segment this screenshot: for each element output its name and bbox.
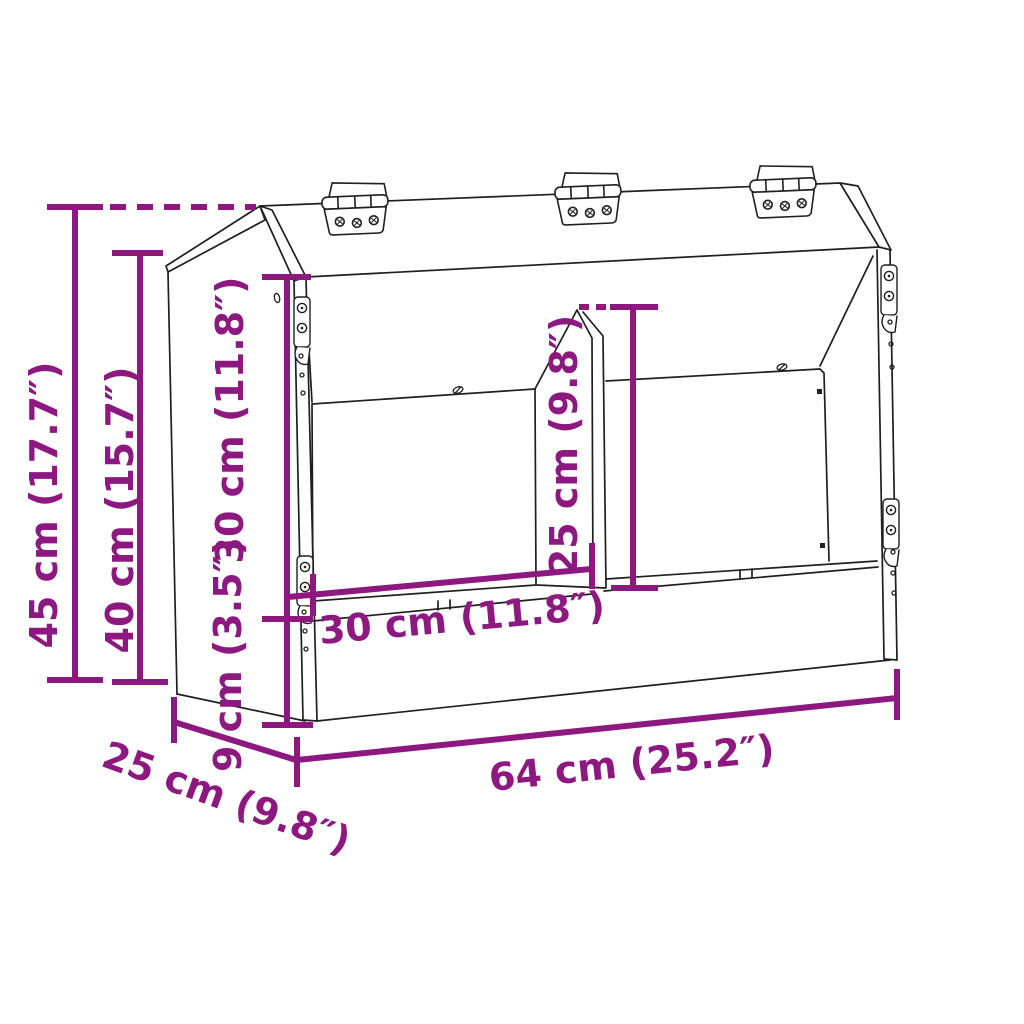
label-front-height: 40 cm (15.7″) bbox=[98, 367, 142, 654]
hinge-icon bbox=[321, 181, 389, 236]
panel-screw-icon bbox=[817, 389, 822, 394]
hinge-icon bbox=[554, 171, 622, 226]
background bbox=[0, 0, 1024, 1024]
panel-screw-icon bbox=[820, 543, 825, 548]
diagram-canvas: 45 cm (17.7″) 40 cm (15.7″) 30 cm (11.8″… bbox=[0, 0, 1024, 1024]
label-overall-height: 45 cm (17.7″) bbox=[22, 362, 66, 649]
label-opening-height: 30 cm (11.8″) bbox=[208, 277, 252, 564]
bracket-icon bbox=[883, 499, 899, 567]
hinge-icon bbox=[749, 164, 817, 219]
label-lip-height: 9 cm (3.5″) bbox=[206, 538, 250, 772]
dimension-diagram: 45 cm (17.7″) 40 cm (15.7″) 30 cm (11.8″… bbox=[0, 0, 1024, 1024]
label-divider-height: 25 cm (9.8″) bbox=[542, 315, 586, 576]
bracket-icon bbox=[881, 265, 897, 333]
